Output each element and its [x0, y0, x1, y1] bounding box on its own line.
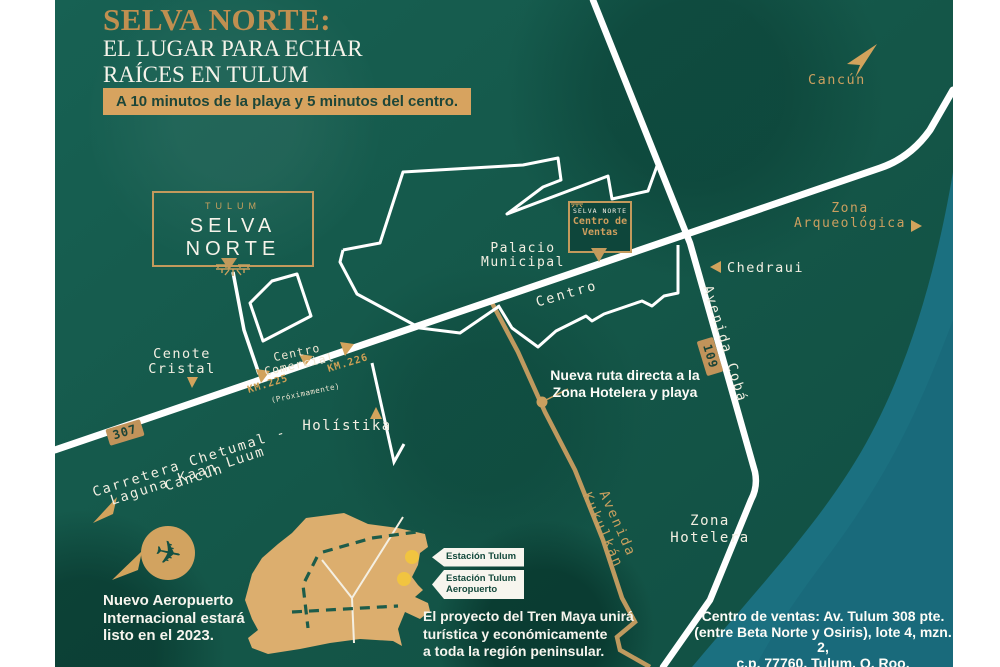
- estacion-tulum-dot: [405, 550, 419, 564]
- tulum-map: SELVA NORTE: EL LUGAR PARA ECHAR RAÍCES …: [55, 0, 953, 667]
- southwest-arrow-2-icon: [112, 551, 142, 580]
- zona-arqueologica-arrow-icon: [911, 220, 922, 232]
- holistika-label: Holístika: [297, 418, 397, 434]
- palacio-municipal-label: Palacio Municipal: [463, 242, 583, 270]
- mayan-tree-small-icon: [570, 203, 584, 208]
- cenote-cristal-label: Cenote Cristal: [132, 347, 232, 377]
- tren-maya-callout: El proyecto del Tren Maya unirá turístic…: [423, 608, 634, 661]
- sales-center-label: Centro de Ventas: [570, 217, 630, 238]
- distance-badge: A 10 minutos de la playa y 5 minutos del…: [103, 88, 471, 115]
- airplane-icon: ✈: [149, 524, 186, 582]
- airport-callout: Nuevo Aeropuerto Internacional estará li…: [103, 592, 245, 645]
- logo-pointer-icon: [221, 258, 237, 270]
- zona-hotelera-label: Zona Hotelera: [660, 513, 760, 547]
- sales-center-brand: SELVA NORTE: [570, 207, 630, 215]
- sales-center-pointer-icon: [591, 248, 607, 262]
- estacion-aeropuerto-dot: [397, 572, 411, 586]
- zona-arqueologica-label: Zona Arqueológica: [790, 201, 910, 231]
- page-subtitle: EL LUGAR PARA ECHAR RAÍCES EN TULUM: [103, 36, 363, 88]
- logo-city-label: TULUM: [154, 201, 312, 211]
- nueva-ruta-callout: Nueva ruta directa a la Zona Hotelera y …: [545, 367, 705, 400]
- chedraui-label: Chedraui: [727, 260, 804, 276]
- estacion-tulum-tag: Estación Tulum: [432, 548, 524, 567]
- selva-norte-logo: TULUM SELVA NORTE: [152, 191, 314, 267]
- poster: SELVA NORTE: EL LUGAR PARA ECHAR RAÍCES …: [0, 0, 1000, 667]
- chedraui-arrow-icon: [710, 261, 721, 273]
- page-title: SELVA NORTE:: [103, 2, 331, 38]
- logo-name-label: SELVA NORTE: [154, 215, 312, 261]
- centro-comercial-soon: (Próximamente): [246, 376, 365, 410]
- estacion-aeropuerto-tag: Estación Tulum Aeropuerto: [432, 570, 524, 599]
- cancun-label: Cancún: [808, 72, 866, 88]
- airport-badge: ✈: [141, 526, 195, 580]
- cenote-marker-icon: [187, 377, 198, 388]
- centro-comercial-name: Centro Comercial: [237, 334, 359, 382]
- address-callout: Centro de ventas: Av. Tulum 308 pte. (en…: [693, 609, 953, 667]
